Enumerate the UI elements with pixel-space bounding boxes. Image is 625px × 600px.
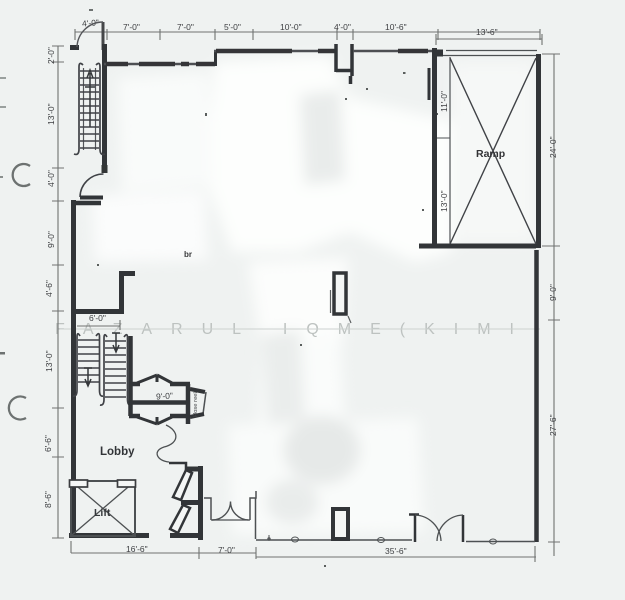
svg-text:10'-0": 10'-0" <box>280 22 302 32</box>
svg-text:br: br <box>184 250 192 259</box>
svg-text:27'-6": 27'-6" <box>548 414 558 436</box>
svg-text:Lobby: Lobby <box>100 446 135 458</box>
svg-text:7'-0": 7'-0" <box>123 22 140 32</box>
svg-text:6'-0": 6'-0" <box>89 313 106 323</box>
svg-text:24'-0": 24'-0" <box>548 136 558 158</box>
svg-text:4'-0": 4'-0" <box>46 170 56 187</box>
svg-text:4'-6": 4'-6" <box>44 280 54 297</box>
svg-text:13'-0": 13'-0" <box>46 103 56 125</box>
svg-text:13'-0": 13'-0" <box>44 350 54 372</box>
svg-text:16'-6": 16'-6" <box>126 544 148 554</box>
svg-text:7'-0": 7'-0" <box>177 22 194 32</box>
svg-text:35'-6": 35'-6" <box>385 546 407 556</box>
svg-text:7'-0": 7'-0" <box>218 545 235 555</box>
svg-text:10'-6": 10'-6" <box>385 22 407 32</box>
svg-text:9'-0": 9'-0" <box>156 390 174 401</box>
svg-text:8'-6": 8'-6" <box>43 491 53 508</box>
svg-text:Lift: Lift <box>94 507 111 519</box>
svg-text:Ramp: Ramp <box>476 148 505 160</box>
svg-text:11'-0": 11'-0" <box>439 91 449 112</box>
svg-text:13'-6": 13'-6" <box>476 27 498 37</box>
svg-text:13'-0": 13'-0" <box>439 190 449 212</box>
svg-text:9'-0": 9'-0" <box>548 284 558 301</box>
svg-text:6'-6": 6'-6" <box>43 435 53 452</box>
svg-text:9'-0": 9'-0" <box>46 231 56 248</box>
svg-text:Hose reel: Hose reel <box>193 392 199 417</box>
svg-text:5'-0": 5'-0" <box>224 22 241 32</box>
svg-text:2'-0": 2'-0" <box>46 47 56 64</box>
svg-text:4'-0": 4'-0" <box>334 22 351 32</box>
